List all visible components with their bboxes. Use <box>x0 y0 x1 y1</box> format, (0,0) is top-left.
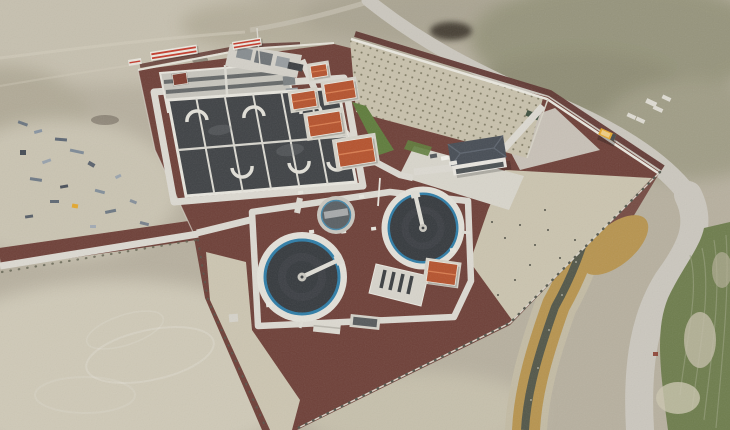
treatment-plant-aerial-view <box>0 0 730 430</box>
photo-grain <box>0 0 730 430</box>
aerial-photo-stage <box>0 0 730 430</box>
